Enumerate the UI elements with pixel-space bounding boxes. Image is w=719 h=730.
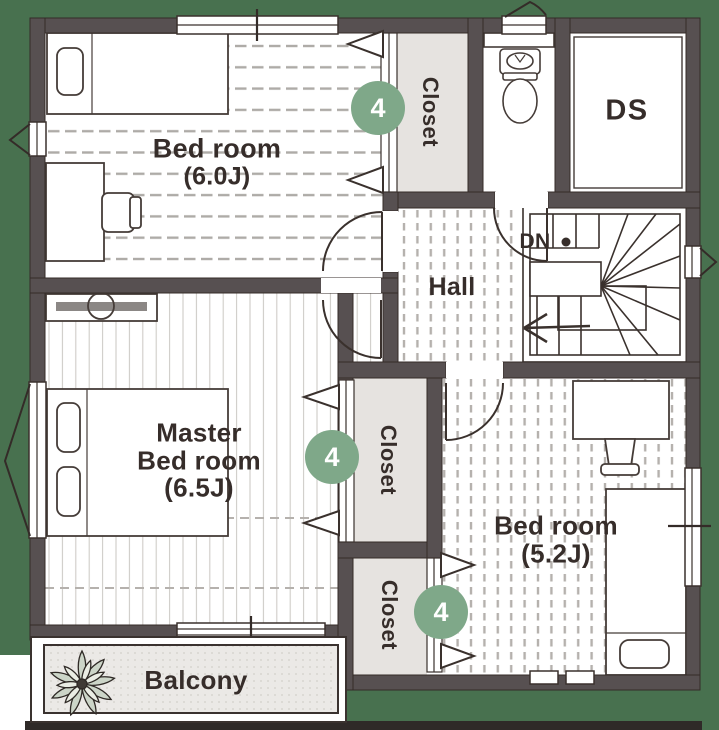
room-label-master-bedroom: Master Bed room (6.5J) (137, 420, 261, 503)
room-label-balcony: Balcony (144, 667, 247, 695)
pillow-icon (57, 467, 80, 516)
room-name: Bed room (137, 447, 261, 475)
room-label-closet-middle: Closet (375, 425, 401, 495)
room-name: Master (137, 420, 261, 448)
feature-badge-closet-bottom[interactable]: 4 (414, 585, 468, 639)
floor-plan: Bed room (6.0J) Master Bed room (6.5J) B… (0, 0, 719, 730)
room-label-closet-top: Closet (417, 77, 443, 147)
chair-icon (605, 439, 635, 466)
pillow-icon (57, 403, 80, 452)
room-label-hall: Hall (428, 274, 475, 301)
room-label-duct-space: DS (605, 96, 648, 127)
room-name: Bed room (153, 134, 281, 163)
desk-icon (46, 163, 104, 261)
feature-badge-closet-top[interactable]: 4 (351, 81, 405, 135)
pillow-icon (57, 48, 83, 95)
window (685, 246, 701, 278)
room-name: Bed room (494, 512, 618, 540)
vent (566, 671, 594, 684)
dn-marker-dot (562, 238, 571, 247)
room-label-bedroom-1: Bed room (6.0J) (153, 134, 281, 189)
background-corner (0, 655, 30, 730)
desk-icon (573, 381, 669, 439)
room-label-bedroom-2: Bed room (5.2J) (494, 512, 618, 567)
room-size: (6.0J) (153, 163, 281, 190)
room-size: (5.2J) (494, 540, 618, 568)
feature-badge-closet-middle[interactable]: 4 (305, 430, 359, 484)
vent (530, 671, 558, 684)
stairs-down-label: DN (520, 231, 551, 253)
pillow-icon (620, 640, 669, 668)
room-label-closet-bottom: Closet (376, 580, 402, 650)
room-size: (6.5J) (137, 475, 261, 503)
bottom-edge-strip (25, 721, 702, 730)
